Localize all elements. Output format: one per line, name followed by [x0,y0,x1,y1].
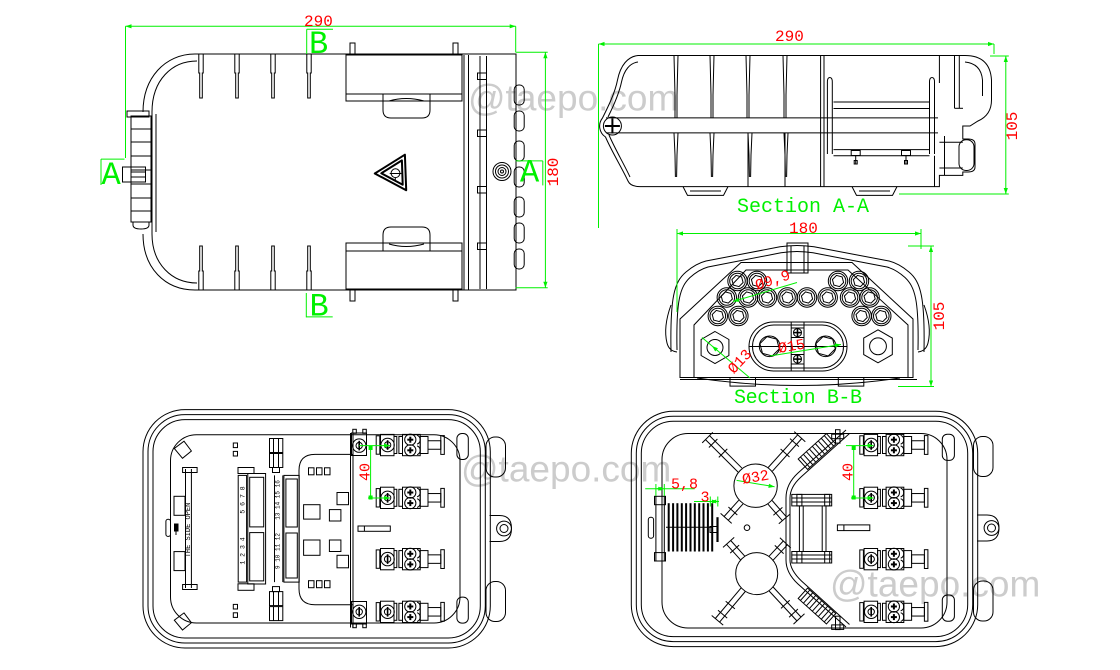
svg-text:180: 180 [789,220,818,238]
svg-text:13 14 15 16: 13 14 15 16 [275,480,282,520]
svg-text:40: 40 [841,463,858,481]
svg-text:9 10 11 12: 9 10 11 12 [275,533,282,569]
svg-text:@taepo.com: @taepo.com [830,564,1040,605]
svg-text:105: 105 [1004,112,1022,141]
svg-text:290: 290 [775,28,804,46]
svg-text:180: 180 [545,158,563,187]
svg-text:Section A-A: Section A-A [737,196,869,219]
svg-text:@taepo.com: @taepo.com [468,78,678,119]
svg-text:B: B [310,289,329,326]
svg-text:Section B-B: Section B-B [734,387,862,410]
svg-text:1 2 3 4: 1 2 3 4 [240,537,247,564]
svg-text:5 6 7 8: 5 6 7 8 [240,486,247,513]
svg-text:3: 3 [701,490,710,507]
svg-text:40: 40 [358,463,375,481]
svg-text:@taepo.com: @taepo.com [461,449,671,490]
svg-text:A: A [520,155,540,192]
svg-text:B: B [309,26,328,63]
svg-text:5,8: 5,8 [671,477,698,494]
svg-text:A: A [102,157,122,194]
svg-text:THE SIDE OPEN: THE SIDE OPEN [185,503,193,558]
svg-text:105: 105 [931,302,949,331]
